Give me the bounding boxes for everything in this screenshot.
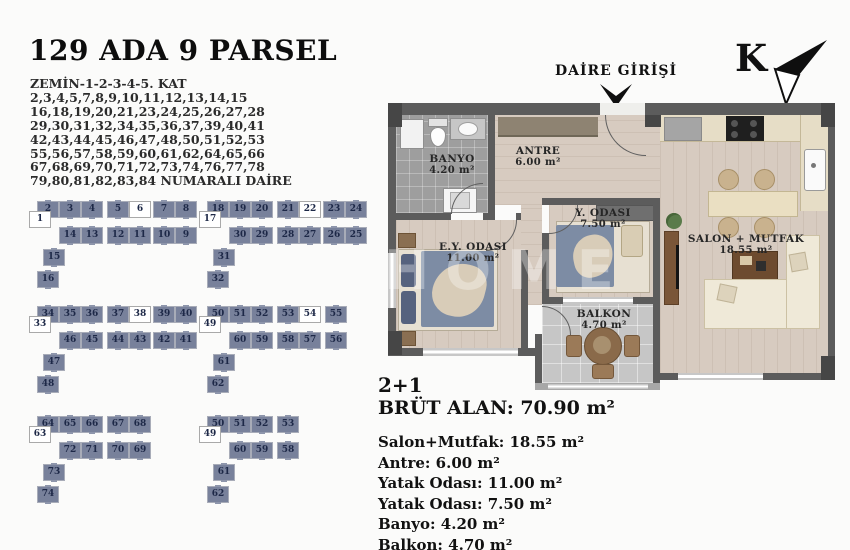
unit-box-10: 10 (154, 228, 174, 243)
entrance-label: DAİRE GİRİŞİ (528, 63, 704, 79)
column (821, 103, 835, 127)
unit-box-13: 13 (82, 228, 102, 243)
unit-box-39: 39 (154, 307, 174, 322)
subtitle-line: 29,30,31,32,34,35,36,37,39,40,41 (30, 119, 292, 133)
burner (750, 120, 757, 127)
wall (521, 250, 528, 348)
column (388, 331, 402, 355)
page-title: 129 ADA 9 PARSEL (29, 34, 337, 67)
room-area-line: Yatak Odası: 7.50 m² (378, 494, 615, 515)
unit-box-60: 60 (230, 443, 250, 458)
room-area-line: Banyo: 4.20 m² (378, 514, 615, 535)
unit-box-21: 21 (278, 202, 298, 217)
unit-box-6: 6 (130, 202, 150, 217)
room-label-y-odasi: Y. ODASI 7.50 m² (575, 207, 631, 231)
table-decor (756, 261, 766, 271)
room-area-line: Balkon: 4.70 m² (378, 535, 615, 550)
wall (653, 198, 660, 383)
subtitle-line: 2,3,4,5,7,8,9,10,11,12,13,14,15 (30, 91, 292, 105)
unit-box-9: 9 (176, 228, 196, 243)
wall (645, 103, 835, 115)
unit-box-31: 31 (214, 250, 234, 265)
unit-box-59: 59 (252, 443, 272, 458)
unit-box-70: 70 (108, 443, 128, 458)
unit-box-22: 22 (300, 202, 320, 217)
wall (828, 103, 835, 380)
unit-box-3: 3 (60, 202, 80, 217)
wall (486, 213, 488, 220)
keyplan-block-4: 5051525354554960595857566162 (200, 307, 372, 399)
unit-box-58: 58 (278, 333, 298, 348)
unit-box-8: 8 (176, 202, 196, 217)
dining-chair (718, 169, 739, 190)
unit-box-45: 45 (82, 333, 102, 348)
faucet (811, 163, 816, 168)
unit-box-38: 38 (130, 307, 150, 322)
unit-box-25: 25 (346, 228, 366, 243)
unit-box-51: 51 (230, 307, 250, 322)
wall (388, 103, 396, 355)
entry-closet (498, 117, 598, 137)
unit-box-26: 26 (324, 228, 344, 243)
wall (488, 115, 495, 220)
unit-box-23: 23 (324, 202, 344, 217)
unit-box-54: 54 (300, 307, 320, 322)
unit-box-37: 37 (108, 307, 128, 322)
dining-chair (754, 169, 775, 190)
unit-box-33: 33 (30, 317, 50, 332)
keyplan-block-3: 34353637383940334645444342414748 (30, 307, 202, 399)
subtitle-line: 42,43,44,45,46,47,48,50,51,52,53 (30, 133, 292, 147)
unit-box-65: 65 (60, 417, 80, 432)
room-area-line: Salon+Mutfak: 18.55 m² (378, 432, 615, 453)
room-label-banyo: BANYO 4.20 m² (429, 153, 475, 177)
burner (731, 131, 738, 138)
unit-box-56: 56 (326, 333, 346, 348)
room-area-line: Antre: 6.00 m² (378, 453, 615, 474)
unit-box-20: 20 (252, 202, 272, 217)
window (563, 297, 633, 304)
unit-box-43: 43 (130, 333, 150, 348)
unit-box-62: 62 (208, 487, 228, 502)
north-arrow-icon (772, 38, 830, 110)
subtitle-line: ZEMİN-1-2-3-4-5. KAT (30, 77, 292, 91)
unit-box-49: 49 (200, 317, 220, 332)
unit-box-41: 41 (176, 333, 196, 348)
unit-box-74: 74 (38, 487, 58, 502)
wall (483, 213, 495, 220)
unit-box-19: 19 (230, 202, 250, 217)
room-label-salon-mutfak: SALON + MUTFAK 18.55 m² (688, 233, 804, 257)
unit-box-5: 5 (108, 202, 128, 217)
unit-box-62: 62 (208, 377, 228, 392)
unit-box-48: 48 (38, 377, 58, 392)
toilet-tank (428, 118, 448, 127)
unit-box-16: 16 (38, 272, 58, 287)
unit-box-47: 47 (44, 355, 64, 370)
wall (516, 213, 521, 220)
unit-box-60: 60 (230, 333, 250, 348)
unit-box-72: 72 (60, 443, 80, 458)
gross-area-line: BRÜT ALAN: 70.90 m² (378, 396, 615, 420)
sofa-pillow (716, 283, 737, 303)
unit-box-73: 73 (44, 465, 64, 480)
subtitle-line: 16,18,19,20,21,23,24,25,26,27,28 (30, 105, 292, 119)
kitchen-sink (804, 149, 826, 191)
washbasin (458, 122, 478, 136)
unit-box-29: 29 (252, 228, 272, 243)
unit-box-61: 61 (214, 355, 234, 370)
room-area-list: Salon+Mutfak: 18.55 m² Antre: 6.00 m² Ya… (378, 432, 615, 550)
unit-box-55: 55 (326, 307, 346, 322)
unit-box-27: 27 (300, 228, 320, 243)
unit-box-12: 12 (108, 228, 128, 243)
unit-box-17: 17 (200, 212, 220, 227)
unit-box-66: 66 (82, 417, 102, 432)
unit-box-1: 1 (30, 212, 50, 227)
unit-box-4: 4 (82, 202, 102, 217)
wall (388, 103, 600, 115)
nightstand (398, 233, 416, 248)
room-label-antre: ANTRE 6.00 m² (515, 145, 561, 169)
unit-box-30: 30 (230, 228, 250, 243)
unit-box-51: 51 (230, 417, 250, 432)
unit-box-69: 69 (130, 443, 150, 458)
table-plate (593, 336, 611, 354)
kitchen-cabinet (664, 117, 702, 141)
tv (676, 245, 679, 289)
window (388, 253, 396, 308)
apartment-number-list: ZEMİN-1-2-3-4-5. KAT 2,3,4,5,7,8,9,10,11… (30, 77, 292, 188)
apartment-summary: 2+1 BRÜT ALAN: 70.90 m² Salon+Mutfak: 18… (378, 374, 615, 550)
unit-box-59: 59 (252, 333, 272, 348)
subtitle-line: 79,80,81,82,83,84 NUMARALI DAİRE (30, 174, 292, 188)
plant (666, 213, 682, 229)
column (821, 356, 835, 380)
shower-tray (400, 119, 424, 149)
unit-box-49: 49 (200, 427, 220, 442)
unit-box-53: 53 (278, 417, 298, 432)
unit-box-35: 35 (60, 307, 80, 322)
floor-plan: BANYO 4.20 m² ANTRE 6.00 m² E.Y. ODASI 1… (388, 103, 835, 390)
burner (750, 131, 757, 138)
unit-box-58: 58 (278, 443, 298, 458)
wall (542, 233, 549, 304)
column (645, 115, 661, 127)
column (388, 103, 402, 127)
unit-box-14: 14 (60, 228, 80, 243)
apartment-type: 2+1 (378, 374, 615, 396)
keyplan-block-6: 50515253496059586162 (200, 417, 372, 509)
unit-box-63: 63 (30, 427, 50, 442)
room-label-ey-odasi: E.Y. ODASI 11.00 m² (439, 241, 507, 265)
page: 129 ADA 9 PARSEL ZEMİN-1-2-3-4-5. KAT 2,… (0, 0, 850, 550)
unit-box-28: 28 (278, 228, 298, 243)
unit-box-67: 67 (108, 417, 128, 432)
table-decor (740, 256, 752, 265)
pillow (401, 291, 416, 324)
keyplan-block-2: 18192021222324173029282726253132 (200, 202, 372, 294)
unit-box-71: 71 (82, 443, 102, 458)
unit-box-15: 15 (44, 250, 64, 265)
keyplan-block-1: 23456781141312111091516 (30, 202, 202, 294)
unit-box-52: 52 (252, 417, 272, 432)
subtitle-line: 55,56,57,58,59,60,61,62,64,65,66 (30, 147, 292, 161)
unit-box-7: 7 (154, 202, 174, 217)
subtitle-line: 67,68,69,70,71,72,73,74,76,77,78 (30, 160, 292, 174)
window (678, 373, 763, 380)
entrance-gap (600, 103, 645, 115)
unit-box-61: 61 (214, 465, 234, 480)
unit-box-53: 53 (278, 307, 298, 322)
unit-box-57: 57 (300, 333, 320, 348)
wall (396, 213, 451, 220)
unit-box-44: 44 (108, 333, 128, 348)
balcony-chair (566, 335, 582, 357)
keyplan-block-5: 646566676863727170697374 (30, 417, 202, 509)
room-area-line: Yatak Odası: 11.00 m² (378, 473, 615, 494)
unit-box-52: 52 (252, 307, 272, 322)
unit-box-46: 46 (60, 333, 80, 348)
unit-box-24: 24 (346, 202, 366, 217)
unit-box-40: 40 (176, 307, 196, 322)
compass-label: K (735, 36, 767, 80)
window (423, 348, 518, 356)
unit-box-36: 36 (82, 307, 102, 322)
balcony-chair (624, 335, 640, 357)
unit-box-11: 11 (130, 228, 150, 243)
unit-box-68: 68 (130, 417, 150, 432)
burner (731, 120, 738, 127)
pillow (401, 254, 416, 287)
unit-box-32: 32 (208, 272, 228, 287)
room-label-balkon: BALKON 4.70 m² (577, 308, 631, 332)
dining-table (708, 191, 798, 217)
wall (542, 198, 660, 205)
unit-box-42: 42 (154, 333, 174, 348)
